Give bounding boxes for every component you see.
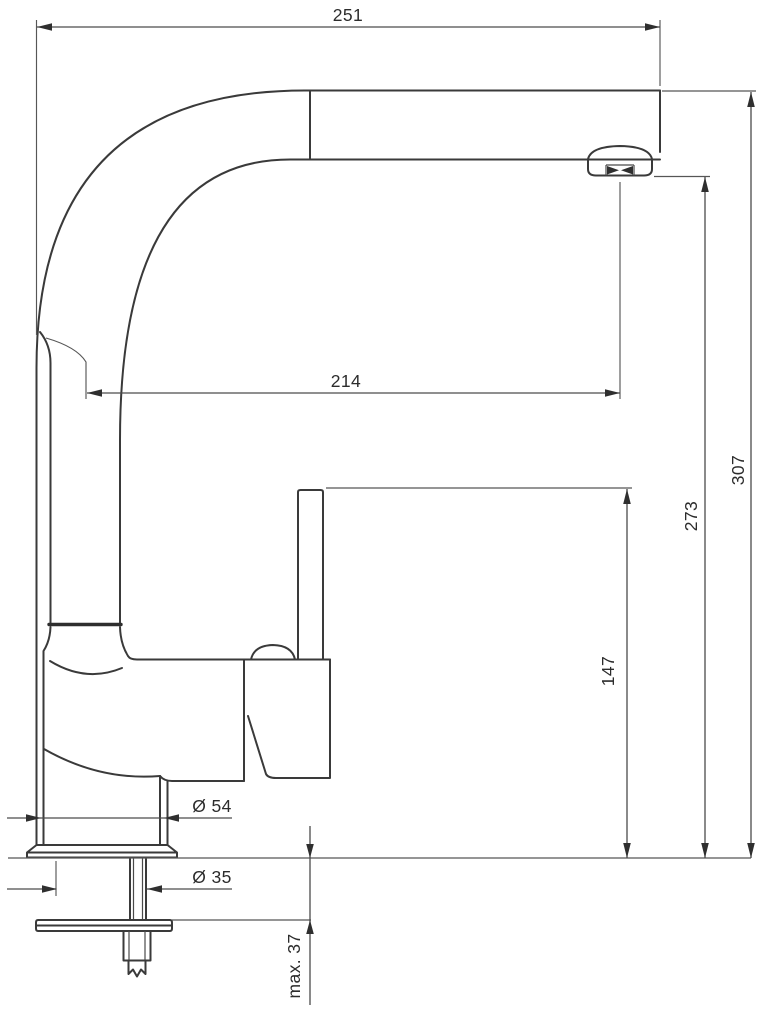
- aerator-outlet-symbol: [607, 166, 619, 175]
- body-upper-curve-seam: [50, 661, 122, 674]
- handle-cone-body: [248, 660, 330, 779]
- body-lower-curve-seam: [44, 749, 160, 777]
- dim-label-total-width: 251: [333, 5, 363, 25]
- connector-bottom-edge: [160, 776, 244, 781]
- dim-total-width: 251: [37, 5, 661, 335]
- dim-base-diameter: Ø 54: [7, 796, 232, 822]
- dim-outlet-height: 273: [654, 177, 710, 859]
- dim-max-counter-thickness: max. 37: [172, 826, 314, 1005]
- riser-inner-left-line: [40, 332, 51, 623]
- dim-label-shank-diameter: Ø 35: [192, 867, 232, 887]
- faucet-outline: [27, 91, 660, 977]
- body-neck-left: [44, 627, 51, 845]
- dim-label-total-height: 307: [728, 455, 748, 485]
- mounting-shank-inner: [134, 858, 143, 920]
- fixing-bolt: [124, 931, 151, 961]
- technical-drawing-sheet: 251 214 307 273: [0, 0, 763, 1010]
- fixing-bolt-inner: [129, 931, 145, 961]
- base-right-edges: [160, 776, 168, 845]
- dim-total-height: 307: [662, 91, 756, 858]
- handle-joint-dome: [251, 645, 295, 660]
- handle-lever: [298, 490, 323, 660]
- dim-label-spout-reach: 214: [331, 371, 361, 391]
- dim-label-handle-height: 147: [598, 656, 618, 686]
- base-flange: [27, 845, 177, 858]
- mounting-shank: [130, 858, 146, 920]
- dim-spout-reach: 214: [46, 182, 620, 399]
- aerator-outlet-symbol: [621, 166, 633, 175]
- dim-label-max-counter-thickness: max. 37: [284, 933, 304, 998]
- mounting-washer: [36, 920, 172, 931]
- spout-inner-contour: [120, 160, 660, 624]
- fixing-bolt-end: [129, 961, 146, 977]
- dim-shank-diameter: Ø 35: [7, 861, 232, 896]
- dim-label-base-diameter: Ø 54: [192, 796, 232, 816]
- aerator-cap: [588, 146, 652, 176]
- faucet-dimension-drawing: 251 214 307 273: [0, 0, 763, 1010]
- dim-label-outlet-height: 273: [681, 501, 701, 531]
- dim-handle-height: 147: [326, 488, 632, 858]
- spout-outer-contour: [37, 91, 661, 846]
